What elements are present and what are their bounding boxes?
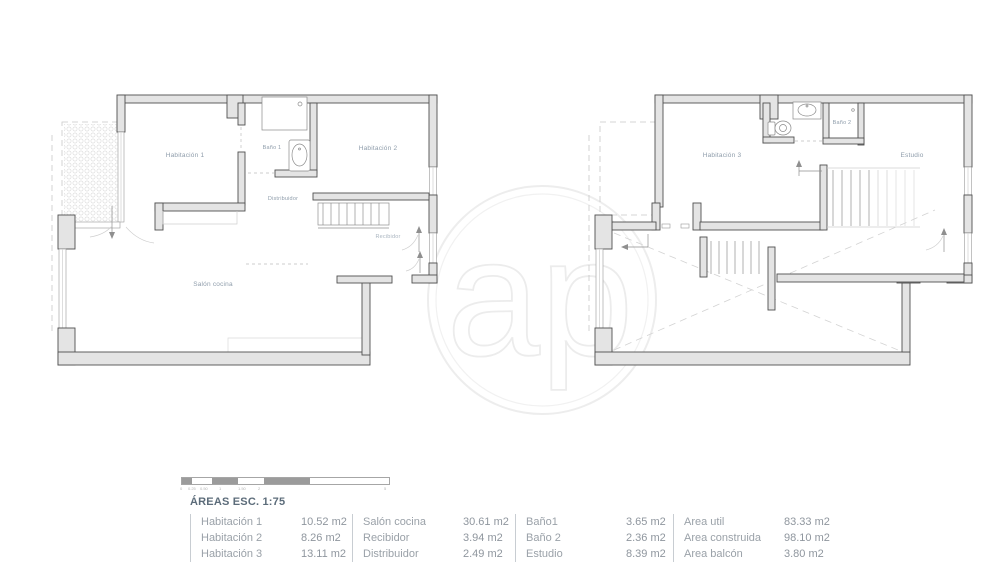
table-row: Distribuidor 2.49 m2 xyxy=(363,546,515,562)
room-label-estudio: Estudio xyxy=(900,152,923,159)
row-label: Baño1 xyxy=(526,514,626,530)
row-value: 2.49 m2 xyxy=(463,546,503,562)
table-row: Recibidor 3.94 m2 xyxy=(363,530,515,546)
row-label: Habitación 1 xyxy=(201,514,301,530)
table-row: Habitación 3 13.11 m2 xyxy=(201,546,352,562)
row-value: 3.94 m2 xyxy=(463,530,503,546)
areas-group-banos: Baño1 3.65 m2 Baño 2 2.36 m2 Estudio 8.3… xyxy=(515,514,673,562)
row-label: Estudio xyxy=(526,546,626,562)
row-value: 13.11 m2 xyxy=(301,546,346,562)
row-label: Distribuidor xyxy=(363,546,463,562)
row-value: 83.33 m2 xyxy=(784,514,830,530)
row-value: 2.36 m2 xyxy=(626,530,666,546)
row-label: Recibidor xyxy=(363,530,463,546)
scale-tick: 0 xyxy=(180,486,182,491)
scale-tick: 2 xyxy=(258,486,260,491)
scale-tick: 0.50 xyxy=(200,486,208,491)
room-label-distribuidor: Distribuidor xyxy=(268,196,298,202)
table-row: Habitación 1 10.52 m2 xyxy=(201,514,352,530)
row-label: Area balcón xyxy=(684,546,784,562)
row-value: 98.10 m2 xyxy=(784,530,830,546)
room-label-bano1: Baño 1 xyxy=(263,145,282,151)
areas-group-salon: Salón cocina 30.61 m2 Recibidor 3.94 m2 … xyxy=(352,514,515,562)
table-row: Area util 83.33 m2 xyxy=(684,514,841,530)
table-row: Estudio 8.39 m2 xyxy=(526,546,673,562)
row-value: 8.39 m2 xyxy=(626,546,666,562)
row-label: Habitación 3 xyxy=(201,546,301,562)
areas-table: Habitación 1 10.52 m2 Habitación 2 8.26 … xyxy=(190,514,841,562)
row-label: Salón cocina xyxy=(363,514,463,530)
room-label-habitacion1: Habitación 1 xyxy=(166,152,205,159)
room-label-recibidor: Recibidor xyxy=(375,234,400,240)
floor-plan-right xyxy=(0,0,1005,582)
room-label-habitacion3: Habitación 3 xyxy=(703,152,742,159)
table-row: Area balcón 3.80 m2 xyxy=(684,546,841,562)
table-row: Baño 2 2.36 m2 xyxy=(526,530,673,546)
table-row: Salón cocina 30.61 m2 xyxy=(363,514,515,530)
row-value: 10.52 m2 xyxy=(301,514,347,530)
scale-bar xyxy=(181,477,390,485)
door-arrows-right-plan xyxy=(621,160,947,252)
room-label-bano2: Baño 2 xyxy=(833,120,852,126)
stairs-main-right-plan xyxy=(827,168,920,227)
row-label: Baño 2 xyxy=(526,530,626,546)
row-value: 8.26 m2 xyxy=(301,530,341,546)
areas-group-totales: Area util 83.33 m2 Area construida 98.10… xyxy=(673,514,841,562)
row-value: 30.61 m2 xyxy=(463,514,509,530)
toilet-right-plan xyxy=(768,121,791,135)
row-value: 3.80 m2 xyxy=(784,546,824,562)
scale-tick: 0.25 xyxy=(188,486,196,491)
room-label-salon-cocina: Salón cocina xyxy=(193,281,233,288)
areas-group-habitaciones: Habitación 1 10.52 m2 Habitación 2 8.26 … xyxy=(190,514,352,562)
table-row: Baño1 3.65 m2 xyxy=(526,514,673,530)
areas-title: ÁREAS ESC. 1:75 xyxy=(190,496,285,508)
row-label: Area construida xyxy=(684,530,784,546)
row-label: Habitación 2 xyxy=(201,530,301,546)
scale-tick: 1 xyxy=(219,486,221,491)
table-row: Habitación 2 8.26 m2 xyxy=(201,530,352,546)
row-value: 3.65 m2 xyxy=(626,514,666,530)
floor-plan-sheet: ap xyxy=(0,0,1005,582)
stairs-upper-right-plan xyxy=(700,237,775,310)
table-row: Area construida 98.10 m2 xyxy=(684,530,841,546)
row-label: Area util xyxy=(684,514,784,530)
sink-right-plan xyxy=(793,102,821,119)
scale-tick: 1.50 xyxy=(238,486,246,491)
room-label-habitacion2: Habitación 2 xyxy=(359,145,398,152)
scale-tick: 5 xyxy=(384,486,386,491)
